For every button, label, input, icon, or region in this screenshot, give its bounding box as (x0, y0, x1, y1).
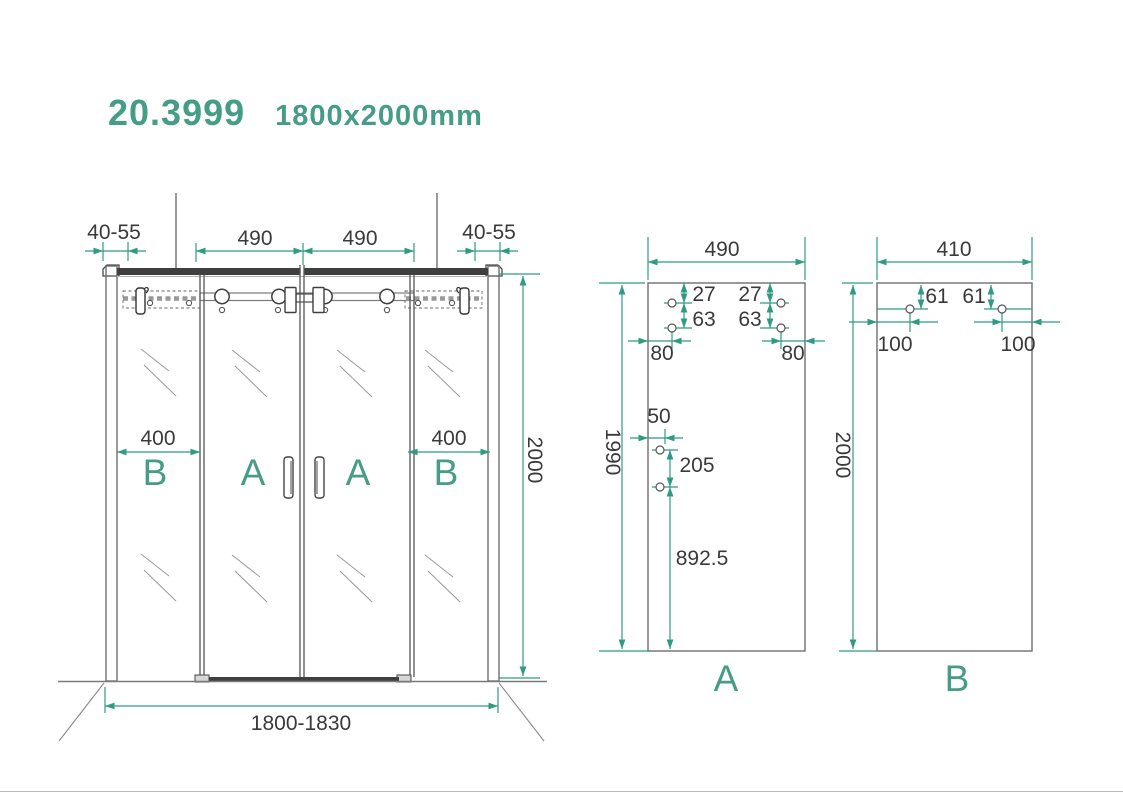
wall-bracket-right (405, 288, 482, 314)
dim-panel-b-edge-left: 100 (849, 313, 938, 356)
dim-panel-b-height: 2000 (831, 283, 877, 651)
front-view: 40-55 40-55 490 490 (58, 193, 547, 741)
clamp-glyph-right (460, 288, 469, 314)
panel-a-detail: 490 1990 27 63 (599, 237, 825, 699)
dim-panel-b-width: 410 (877, 237, 1032, 280)
door-handle-left (284, 457, 293, 498)
dim-panel-a-handle-bottom: 892.5 (670, 487, 728, 649)
dim-text-panel-a-height: 1990 (601, 429, 624, 476)
dim-text-panel-a-hole-gap-right: 63 (738, 308, 761, 331)
dim-panel-a-edge-right: 80 (762, 332, 825, 365)
front-panel-label-a-right: A (346, 452, 371, 493)
roller-wheel (272, 289, 286, 303)
panel-a-hole (777, 324, 785, 332)
roller-bolt (219, 307, 224, 312)
dim-text-wall-profile-left: 40-55 (87, 221, 141, 244)
dim-text-panel-a-handle-bottom: 892.5 (676, 547, 729, 570)
top-rail-center-gap (301, 267, 304, 277)
panel-b-label: B (945, 658, 970, 699)
panel-a-hole (668, 324, 676, 332)
dim-wall-profile-left: 40-55 (85, 221, 146, 261)
dim-panel-a-edge-left: 80 (628, 332, 691, 365)
page-bottom-divider (0, 791, 1123, 792)
roller-wheel (380, 289, 394, 303)
dim-text-panel-b-edge-left: 100 (877, 333, 912, 356)
dim-panel-a-height: 1990 (599, 283, 650, 651)
dim-text-door-width-right: 490 (342, 227, 377, 250)
dim-text-fixed-panel-left: 400 (140, 427, 175, 450)
sliding-door-right-stile (397, 275, 414, 682)
dim-text-wall-profile-right: 40-55 (462, 221, 516, 244)
dim-text-panel-b-height: 2000 (831, 432, 854, 479)
door-stopper-left (285, 288, 296, 313)
panel-a-label: A (714, 658, 739, 699)
panel-b-hole (998, 305, 1006, 313)
dim-text-front-height: 2000 (523, 437, 546, 484)
panel-b-hole (906, 305, 914, 313)
roller-bolt (275, 307, 280, 312)
dim-text-panel-a-handle-edge: 50 (647, 405, 670, 428)
door-stopper-right (313, 288, 324, 313)
dim-wall-profile-right: 40-55 (457, 221, 518, 261)
panel-a-handle-hole (656, 483, 664, 491)
dim-text-panel-b-width: 410 (936, 238, 971, 261)
dim-total-width: 1800-1830 (105, 687, 498, 735)
panel-a-hole (777, 299, 785, 307)
dim-panel-a-width: 490 (648, 237, 805, 280)
technical-drawing-page: 20.3999 1800x2000mm (0, 0, 1123, 794)
front-panel-label-a-left: A (241, 452, 266, 493)
front-panel-label-b-right: B (434, 452, 459, 493)
roller-bolt (384, 307, 389, 312)
dim-text-panel-a-hole-top-right: 27 (738, 283, 761, 306)
dim-text-door-width-left: 490 (237, 227, 272, 250)
dim-text-panel-a-edge-right: 80 (781, 342, 804, 365)
door-handle-right (315, 457, 324, 498)
dim-text-panel-b-edge-right: 100 (1000, 333, 1035, 356)
front-panel-label-b-left: B (143, 452, 168, 493)
wall-profile-right (486, 265, 502, 681)
center-door-stiles (300, 265, 304, 677)
floor-break-right (499, 683, 544, 741)
wall-profile-left (103, 265, 119, 681)
dim-text-total-width: 1800-1830 (251, 712, 351, 735)
dim-text-panel-b-hole-top-left: 61 (925, 285, 948, 308)
sliding-door-left-stile (195, 275, 209, 682)
drawing-svg: 40-55 40-55 490 490 (0, 0, 1123, 794)
dim-text-panel-b-hole-top-right: 61 (962, 285, 985, 308)
panel-a-hole (668, 299, 676, 307)
roller-wheel (215, 289, 229, 303)
dim-text-panel-a-handle-spacing: 205 (679, 454, 714, 477)
dim-panel-b-hole-top-right: 61 (962, 285, 991, 309)
panel-b-detail: 410 2000 61 61 (831, 237, 1060, 699)
panel-a-handle-hole (656, 446, 664, 454)
dim-text-panel-a-width: 490 (704, 238, 739, 261)
dim-text-panel-a-hole-top-left: 27 (692, 283, 715, 306)
dim-panel-a-handle-edge: 50 (630, 405, 683, 444)
dim-text-fixed-panel-right: 400 (431, 427, 466, 450)
dim-text-panel-a-edge-left: 80 (650, 342, 673, 365)
dim-door-widths: 490 490 (196, 227, 414, 265)
dim-front-height: 2000 (499, 274, 546, 678)
floor-break-left (59, 683, 104, 741)
dim-panel-b-hole-top-left: 61 (921, 285, 949, 309)
dim-text-panel-a-hole-gap-left: 63 (692, 308, 715, 331)
dim-panel-b-edge-right: 100 (974, 313, 1060, 356)
wall-bracket-left (123, 288, 200, 314)
dim-panel-a-handle-spacing: 205 (652, 450, 715, 487)
clamp-glyph-left (136, 288, 145, 314)
